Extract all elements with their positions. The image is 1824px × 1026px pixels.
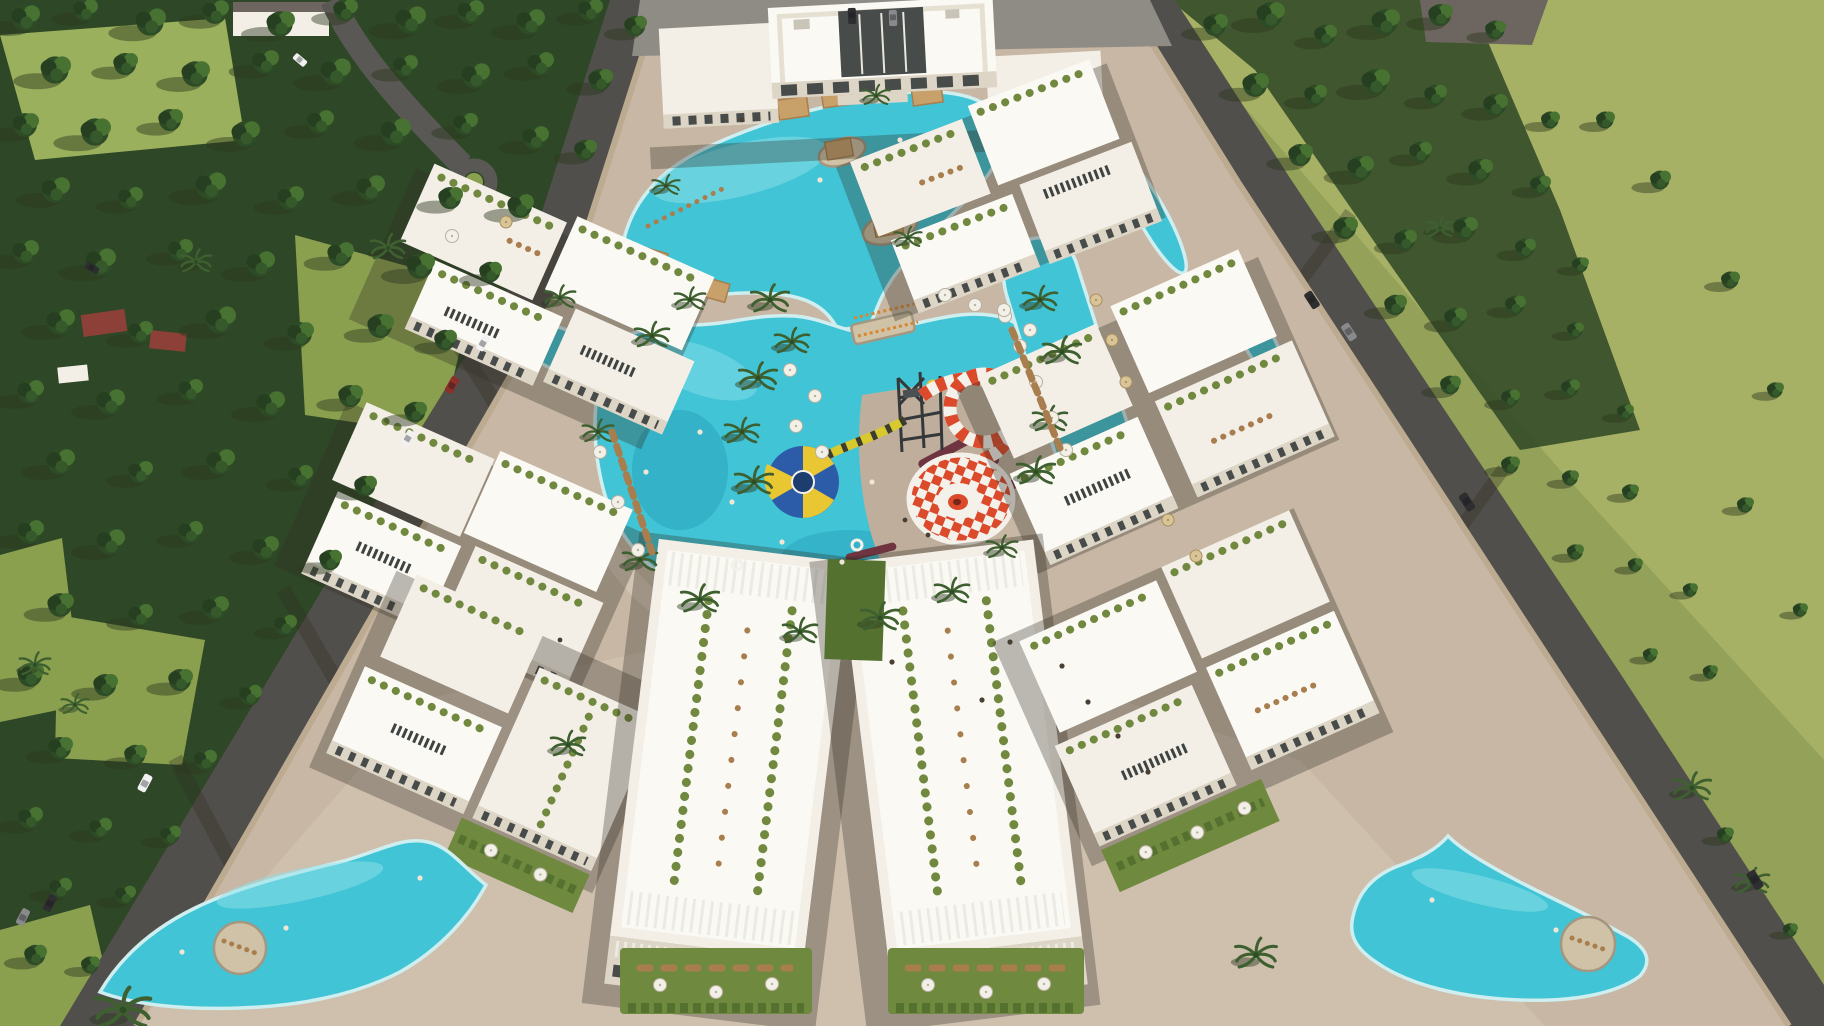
resort-aerial-render xyxy=(0,0,1824,1026)
car-dark xyxy=(848,8,857,24)
screenshot-root xyxy=(0,0,1824,1026)
car-gray xyxy=(889,10,898,26)
